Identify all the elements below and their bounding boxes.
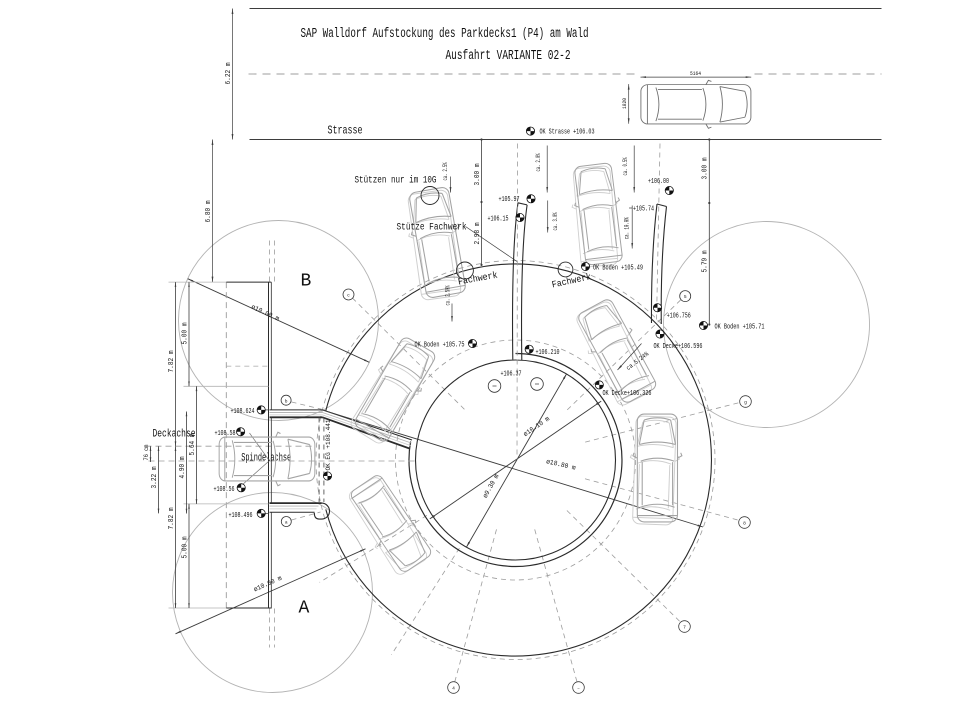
svg-text:OK Boden +105.71: OK Boden +105.71 (715, 324, 765, 332)
svg-text:+106.00: +106.00 (648, 178, 669, 186)
svg-text:4.90 m: 4.90 m (179, 457, 187, 479)
svg-text:ca. 2.5%: ca. 2.5% (442, 162, 449, 180)
svg-text:7.82 m: 7.82 m (168, 508, 176, 530)
svg-text:3.00 m: 3.00 m (474, 164, 482, 186)
svg-text:Strasse: Strasse (328, 124, 363, 138)
svg-text:ca. 2.0%: ca. 2.0% (535, 153, 542, 171)
svg-text:7: 7 (683, 625, 686, 631)
svg-text:7.82 m: 7.82 m (168, 351, 176, 373)
svg-text:5.00 m: 5.00 m (182, 537, 190, 559)
svg-text:+106.210: +106.210 (536, 349, 560, 357)
svg-text:OK Boden +105.75: OK Boden +105.75 (415, 342, 465, 350)
svg-text:3.00 m: 3.00 m (702, 158, 710, 180)
svg-text:3.22 m: 3.22 m (151, 467, 159, 489)
svg-text:+108.496: +108.496 (229, 512, 253, 520)
svg-text:+108.58: +108.58 (215, 430, 236, 438)
svg-text:+105.97: +105.97 (499, 196, 520, 204)
svg-text:a: a (285, 521, 288, 526)
svg-text:5.64 m: 5.64 m (189, 434, 197, 456)
svg-text:4: 4 (452, 686, 455, 692)
svg-text:2.98 m: 2.98 m (474, 223, 482, 245)
svg-text:OK Decke+106.326: OK Decke+106.326 (603, 390, 652, 398)
svg-text:Spindelachse: Spindelachse (241, 453, 291, 465)
svg-text:+106.15: +106.15 (488, 215, 509, 223)
svg-text:B: B (301, 272, 312, 292)
svg-text:Stützen nur im 10G: Stützen nur im 10G (355, 175, 437, 187)
svg-text:Ausfahrt VARIANTE 02-2: Ausfahrt VARIANTE 02-2 (446, 49, 571, 64)
svg-text:OK Boden +105.49: OK Boden +105.49 (593, 264, 643, 272)
svg-text:1820: 1820 (622, 98, 628, 109)
svg-text:ca. 2.50%: ca. 2.50% (445, 285, 452, 305)
svg-text:OK Strasse +106.03: OK Strasse +106.03 (540, 129, 595, 137)
svg-text:+108.56: +108.56 (214, 486, 235, 494)
svg-text:g: g (744, 401, 747, 406)
svg-text:OK Decke+106.596: OK Decke+106.596 (654, 343, 703, 351)
svg-text:+105.74: +105.74 (633, 206, 654, 214)
svg-text:b: b (285, 398, 288, 404)
svg-text:5.00 m: 5.00 m (182, 323, 190, 345)
svg-text:Stütze Fachwerk: Stütze Fachwerk (397, 222, 467, 234)
svg-text:ca. 3.0%: ca. 3.0% (552, 212, 559, 230)
svg-text:5: 5 (684, 294, 687, 300)
svg-text:+106.37: +106.37 (501, 370, 522, 378)
svg-text:ca. 10.0%: ca. 10.0% (624, 217, 631, 239)
svg-text:c: c (347, 294, 350, 299)
svg-text:6.22 m: 6.22 m (225, 63, 233, 85)
svg-text:SAP Walldorf Aufstockung des P: SAP Walldorf Aufstockung des Parkdecks1 … (301, 27, 589, 42)
svg-text:+106.756: +106.756 (667, 313, 691, 321)
svg-text:ca. 0.5%: ca. 0.5% (622, 157, 629, 175)
svg-text:5.79 m: 5.79 m (702, 251, 710, 273)
svg-text:–: – (577, 687, 580, 692)
svg-text:8: 8 (743, 521, 746, 527)
svg-text:+108.624: +108.624 (231, 408, 255, 416)
svg-text:OK EG +108.441: OK EG +108.441 (325, 420, 333, 471)
svg-text:5164: 5164 (690, 71, 701, 77)
svg-text:A: A (299, 599, 310, 619)
svg-text:76 cm: 76 cm (143, 444, 150, 460)
svg-text:6.80 m: 6.80 m (205, 201, 213, 223)
